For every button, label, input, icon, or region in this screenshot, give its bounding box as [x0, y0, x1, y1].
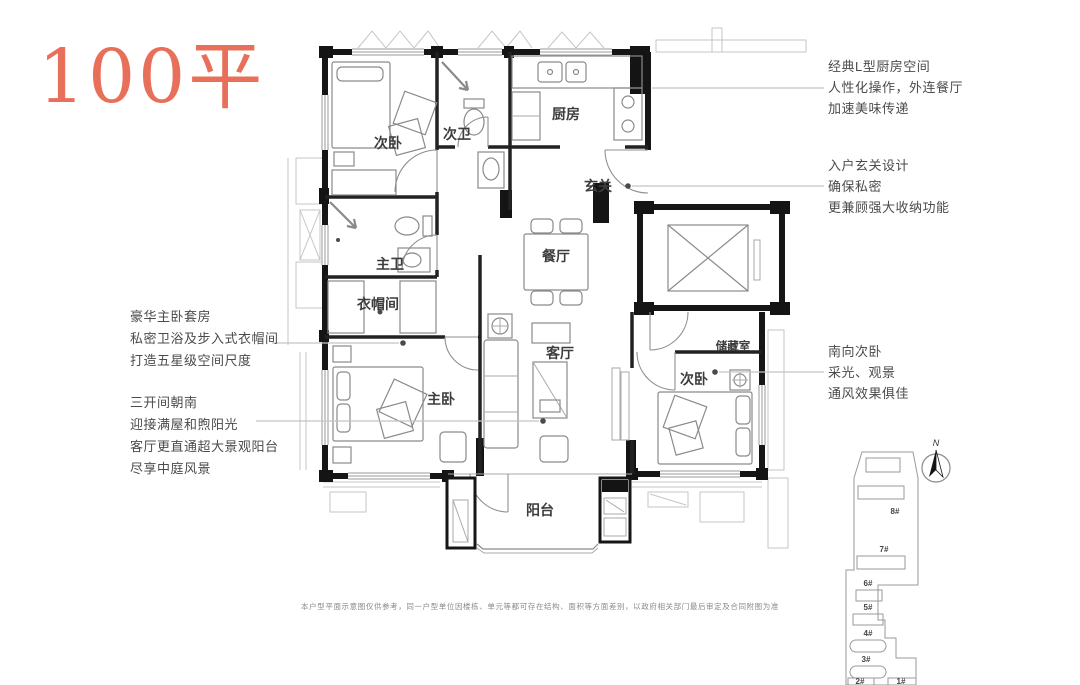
annotation-south-facing: 三开间朝南 迎接满屋和煦阳光 客厅更直通超大景观阳台 尽享中庭风景 [130, 392, 279, 480]
building-label-7: 7# [880, 545, 889, 554]
annotation-line: 私密卫浴及步入式衣帽间 [130, 328, 279, 350]
room-label-kitchen: 厨房 [552, 106, 580, 122]
building-label-1: 1# [897, 677, 906, 685]
annotation-master-suite: 豪华主卧套房 私密卫浴及步入式衣帽间 打造五星级空间尺度 [130, 306, 279, 372]
building-label-6: 6# [864, 579, 873, 588]
building-label-3: 3# [862, 655, 871, 664]
room-label-balcony: 阳台 [526, 502, 554, 518]
annotation-line: 采光、观景 [828, 362, 909, 383]
room-label-bedroom-master: 主卧 [427, 391, 455, 407]
room-label-living: 客厅 [545, 345, 574, 361]
room-label-cloakroom: 衣帽间 [357, 296, 399, 312]
annotation-line: 三开间朝南 [130, 392, 279, 414]
annotation-line: 迎接满屋和煦阳光 [130, 414, 279, 436]
annotation-line: 确保私密 [828, 176, 950, 197]
room-label-dining: 餐厅 [541, 248, 570, 264]
room-labels: 次卧 次卫 厨房 玄关 餐厅 主卫 衣帽间 主卧 客厅 储藏室 次卧 阳台 [357, 106, 751, 518]
annotation-line: 打造五星级空间尺度 [130, 350, 279, 372]
site-plan: 8# 7# 6# 5# 4# 3# 2# 1# [846, 452, 918, 685]
room-label-bath-second: 次卫 [443, 126, 471, 142]
annotation-line: 加速美味传递 [828, 98, 963, 119]
living-furniture [484, 314, 570, 462]
disclaimer-text: 本户型平面示意图仅供参考，同一户型单位因楼栋、单元等都可存在结构、面积等方面差别… [301, 601, 779, 612]
building-label-4: 4# [864, 629, 873, 638]
room-label-storage: 储藏室 [716, 339, 751, 353]
compass-north-label: N [933, 438, 940, 448]
annotation-line: 人性化操作，外连餐厅 [828, 77, 963, 98]
annotation-foyer: 入户玄关设计 确保私密 更兼顾强大收纳功能 [828, 155, 950, 218]
elevator-shaft [668, 225, 760, 291]
annotation-south-bedroom: 南向次卧 采光、观景 通风效果俱佳 [828, 341, 909, 404]
floorplan-page: 100平 [0, 0, 1080, 685]
annotation-kitchen: 经典L型厨房空间 人性化操作，外连餐厅 加速美味传递 [828, 56, 963, 119]
room-label-foyer: 玄关 [584, 178, 612, 194]
room-label-bath-master: 主卫 [376, 256, 404, 272]
room-label-bedroom-north: 次卧 [374, 135, 402, 151]
building-label-5: 5# [864, 603, 873, 612]
bath-second-fixtures [442, 62, 504, 188]
building-label-2: 2# [856, 677, 865, 685]
annotation-line: 更兼顾强大收纳功能 [828, 197, 950, 218]
annotation-line: 通风效果俱佳 [828, 383, 909, 404]
building-label-8: 8# [891, 507, 900, 516]
annotation-line: 南向次卧 [828, 341, 909, 362]
annotation-line: 尽享中庭风景 [130, 458, 279, 480]
bed-north [332, 62, 437, 195]
annotation-line: 经典L型厨房空间 [828, 56, 963, 77]
room-label-bedroom-south: 次卧 [680, 371, 708, 387]
kitchen-counter [512, 56, 642, 140]
compass: N [922, 438, 950, 482]
annotation-line: 客厅更直通超大景观阳台 [130, 436, 279, 458]
annotation-line: 入户玄关设计 [828, 155, 950, 176]
annotation-line: 豪华主卧套房 [130, 306, 279, 328]
